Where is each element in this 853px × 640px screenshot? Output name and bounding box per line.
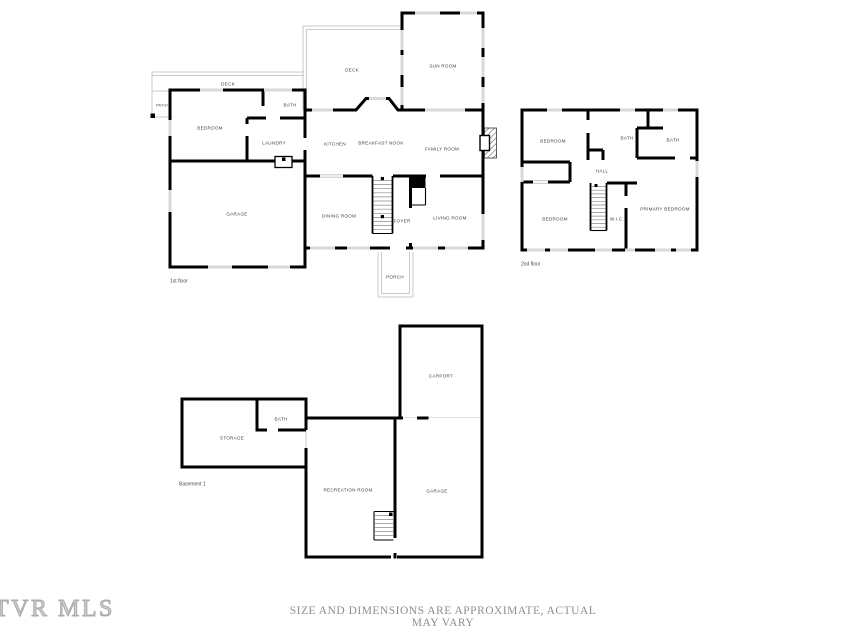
- room-label-kitchen: KITCHEN: [324, 142, 346, 147]
- room-label-basement-bath: BATH: [275, 417, 288, 422]
- basement-stairs: [374, 512, 394, 541]
- basement-walls: [182, 326, 484, 559]
- room-label-primary-bedroom: PRIMARY BEDROOM: [640, 207, 690, 212]
- room-label-porch: PORCH: [386, 275, 404, 280]
- room-label-bath: BATH: [284, 102, 297, 107]
- floorplan-page: DECK SUN ROOM DECK PATIO BEDROOM BATH LA…: [0, 0, 853, 640]
- room-label-laundry: LAUNDRY: [262, 141, 286, 146]
- room-label-deck-upper: DECK: [345, 68, 359, 73]
- room-label-family-room: FAMILY ROOM: [425, 146, 459, 151]
- size-disclaimer: SIZE AND DIMENSIONS ARE APPROXIMATE, ACT…: [281, 605, 605, 629]
- room-label-basement-garage: GARAGE: [426, 489, 447, 494]
- second-floor-caption: 2nd floor: [521, 261, 540, 267]
- mls-watermark: TVR MLS: [0, 596, 115, 623]
- basement-caption: Basement 1: [179, 481, 206, 487]
- room-label-breakfast-nook: BREAKFAST NOOK: [358, 140, 403, 145]
- second-floor-walls: [522, 110, 697, 250]
- room-label-recreation-room: RECREATION ROOM: [323, 487, 372, 492]
- room-label-sun-room: SUN ROOM: [429, 64, 456, 69]
- first-floor-caption: 1st floor: [170, 278, 188, 284]
- room-label-storage: STORAGE: [220, 436, 244, 441]
- room-label-carport: CARPORT: [429, 374, 453, 379]
- first-floor-stairs: [373, 176, 393, 234]
- room-label-garage: GARAGE: [226, 212, 247, 217]
- room-label-bath-middle: BATH: [621, 136, 634, 141]
- room-label-living-room: LIVING ROOM: [433, 216, 466, 221]
- room-label-patio: PATIO: [156, 102, 168, 107]
- room-label-hall: HALL: [596, 168, 608, 173]
- room-label-deck-side: DECK: [221, 81, 235, 86]
- floorplan-linework: [0, 0, 853, 640]
- second-floor-stairs: [591, 183, 607, 231]
- room-label-bath-right: BATH: [667, 138, 680, 143]
- room-label-foyer: FOYER: [393, 219, 410, 224]
- first-floor-walls: [169, 12, 485, 269]
- room-label-bedroom: BEDROOM: [197, 126, 222, 131]
- room-label-wic: W.I.C.: [610, 217, 624, 222]
- room-label-bedroom-bottom: BEDROOM: [542, 217, 567, 222]
- first-floor-windows: [170, 13, 483, 267]
- room-label-bedroom-top: BEDROOM: [540, 139, 565, 144]
- second-floor-windows: [522, 110, 697, 250]
- room-label-dining-room: DINING ROOM: [322, 213, 356, 218]
